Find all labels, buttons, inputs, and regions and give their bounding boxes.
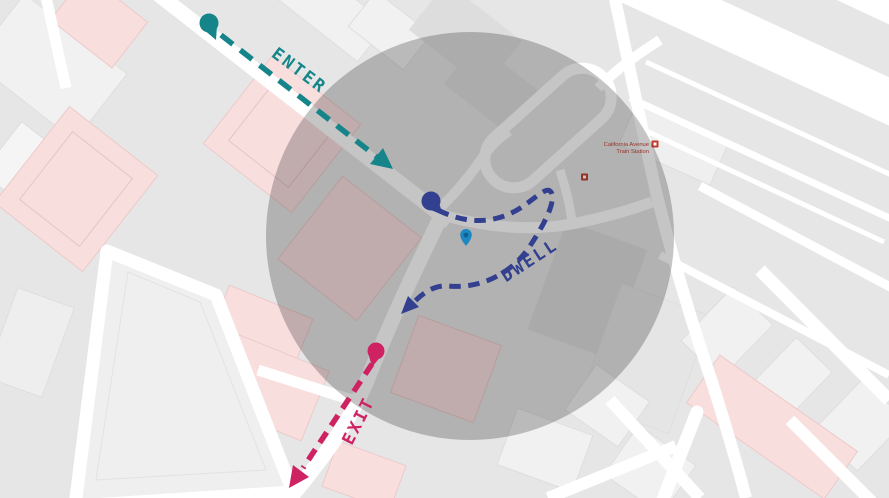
enter-arrow [200, 14, 394, 170]
geofence-map: California Avenue Train Station [0, 0, 889, 498]
dwell-dot [422, 192, 444, 216]
enter-arrowhead-icon [370, 148, 393, 169]
annotations-layer [0, 0, 889, 498]
location-pin-icon [460, 229, 472, 246]
enter-start-dot [200, 14, 219, 41]
